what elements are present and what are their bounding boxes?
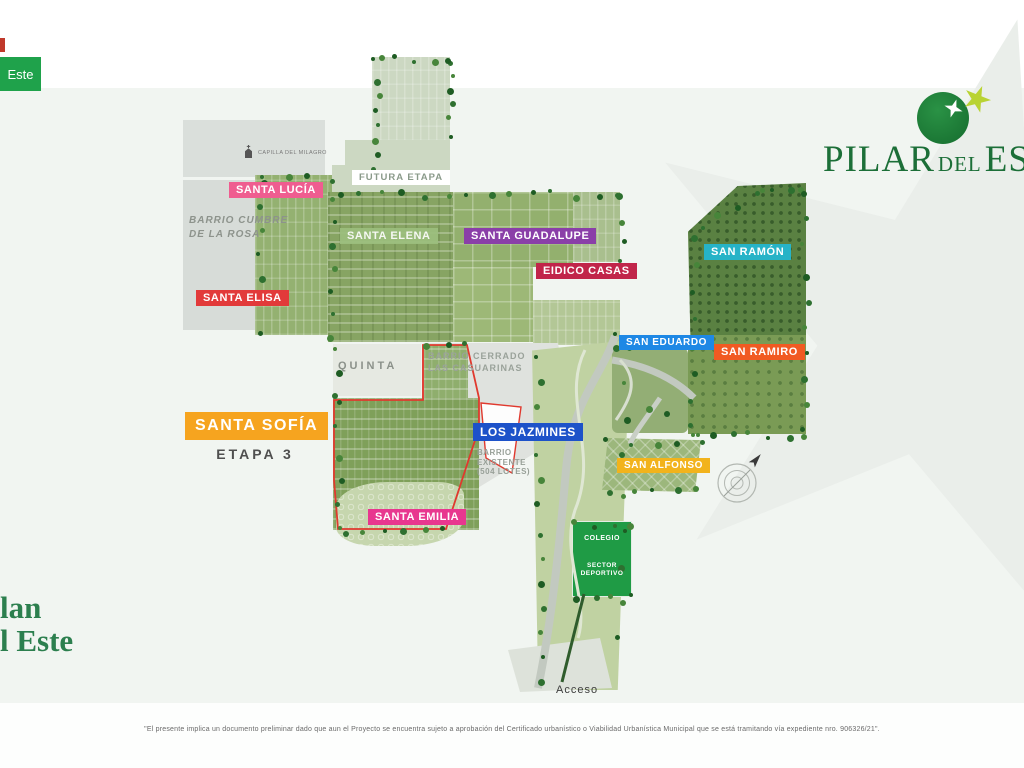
cumbre-line1: BARRIO CUMBRE bbox=[189, 214, 288, 228]
label-santa-elisa: SANTA ELISA bbox=[196, 290, 289, 306]
footer-disclaimer: "El presente implica un documento prelim… bbox=[0, 726, 1024, 733]
area-cumbre-upper bbox=[183, 120, 325, 177]
tree-dot bbox=[451, 74, 455, 78]
casuarinas-line1: BARRIO CERRADO bbox=[428, 350, 526, 362]
area-central-right bbox=[573, 192, 620, 262]
label-san-alfonso: SAN ALFONSO bbox=[617, 458, 710, 473]
chapel-icon bbox=[243, 145, 254, 163]
sector-line2: DEPORTIVO bbox=[572, 570, 632, 578]
area-san-eduardo bbox=[612, 348, 688, 433]
masterplan-page: CAPILLA DEL MILAGRO BARRIO CUMBRE DE LA … bbox=[0, 0, 1024, 768]
jazmines-sub-line3: (504 LOTES) bbox=[477, 467, 530, 477]
area-santa-lucia bbox=[255, 175, 333, 335]
jazmines-sub-label: BARRIO EXISTENTE (504 LOTES) bbox=[477, 448, 530, 477]
brand-wordmark: PILAR DEL ESTE bbox=[823, 138, 1024, 181]
brand-word-del: DEL bbox=[938, 152, 982, 177]
este-button[interactable]: Este bbox=[0, 57, 41, 91]
area-guadalupe-lower bbox=[453, 267, 533, 342]
background-footer-band bbox=[0, 703, 1024, 768]
clipped-corner-line2: l Este bbox=[0, 624, 73, 657]
label-san-ramon: SAN RAMÓN bbox=[704, 244, 791, 260]
clipped-corner-line1: lan bbox=[0, 591, 73, 624]
jazmines-sub-line2: EXISTENTE bbox=[477, 458, 530, 468]
quinta-label: QUINTA bbox=[338, 360, 397, 372]
cumbre-label: BARRIO CUMBRE DE LA ROSA bbox=[189, 214, 288, 242]
label-santa-lucia: SANTA LUCÍA bbox=[229, 182, 323, 198]
acceso-label: Acceso bbox=[556, 684, 598, 696]
area-santa-elena bbox=[328, 192, 453, 342]
chapel-label: CAPILLA DEL MILAGRO bbox=[258, 150, 327, 156]
label-santa-elena: SANTA ELENA bbox=[340, 228, 438, 244]
label-santa-sofia-etapa: ETAPA 3 bbox=[185, 446, 325, 462]
clipped-corner-text: lan l Este bbox=[0, 591, 73, 657]
label-futura-etapa: FUTURA ETAPA bbox=[352, 170, 450, 185]
red-corner-marker bbox=[0, 38, 5, 52]
jazmines-sub-line1: BARRIO bbox=[477, 448, 530, 458]
label-santa-emilia: SANTA EMILIA bbox=[368, 509, 466, 525]
label-eidico-casas: EIDICO CASAS bbox=[536, 263, 637, 279]
label-santa-sofia: SANTA SOFÍA bbox=[185, 412, 328, 440]
casuarinas-line2: LAS CASUARINAS bbox=[428, 362, 526, 374]
casuarinas-label: BARRIO CERRADO LAS CASUARINAS bbox=[428, 350, 526, 374]
colegio-label: COLEGIO bbox=[572, 535, 632, 542]
area-futura-etapa bbox=[345, 140, 450, 197]
cumbre-line2: DE LA ROSA bbox=[189, 228, 288, 242]
label-los-jazmines: LOS JAZMINES bbox=[473, 423, 583, 441]
label-santa-guadalupe: SANTA GUADALUPE bbox=[464, 228, 596, 244]
brand-word-pilar: PILAR bbox=[823, 138, 935, 181]
area-eidico-strip bbox=[533, 300, 620, 345]
label-san-ramiro: SAN RAMIRO bbox=[714, 344, 805, 360]
sector-deportivo-label: SECTOR DEPORTIVO bbox=[572, 562, 632, 578]
sector-line1: SECTOR bbox=[572, 562, 632, 570]
label-san-eduardo: SAN EDUARDO bbox=[619, 335, 714, 350]
logo-circle bbox=[917, 92, 969, 144]
brand-word-este: ESTE bbox=[985, 138, 1024, 181]
area-school bbox=[572, 521, 632, 597]
